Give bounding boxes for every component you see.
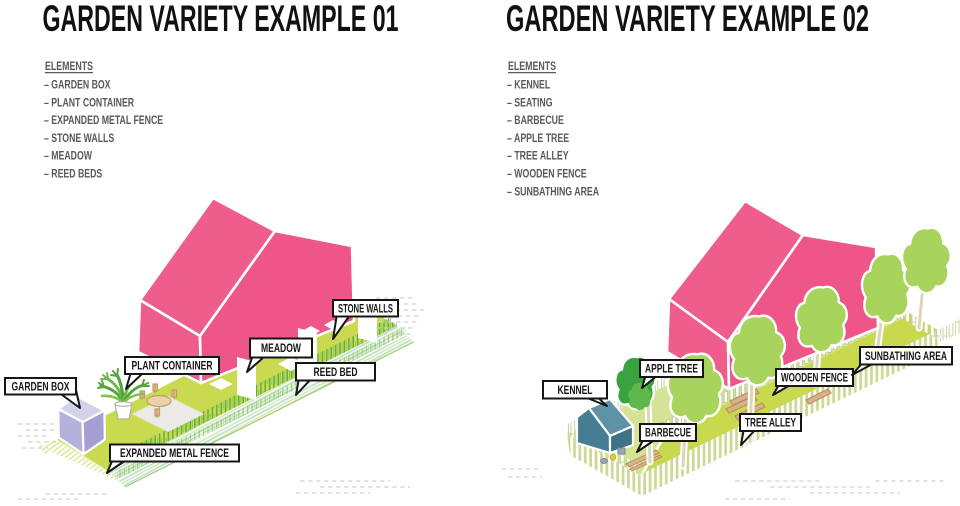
svg-text:– TREE ALLEY: – TREE ALLEY [507, 149, 569, 163]
svg-text:– EXPANDED METAL FENCE: – EXPANDED METAL FENCE [44, 113, 163, 127]
svg-text:– PLANT CONTAINER: – PLANT CONTAINER [44, 95, 134, 109]
svg-text:SUNBATHING AREA: SUNBATHING AREA [865, 351, 947, 363]
svg-text:WOODEN FENCE: WOODEN FENCE [781, 373, 848, 385]
svg-text:EXPANDED METAL FENCE: EXPANDED METAL FENCE [120, 448, 229, 460]
svg-text:TREE ALLEY: TREE ALLEY [745, 418, 796, 430]
svg-text:BARBECUE: BARBECUE [645, 428, 691, 440]
svg-text:– KENNEL: – KENNEL [507, 78, 551, 92]
svg-text:– WOODEN FENCE: – WOODEN FENCE [507, 167, 587, 181]
svg-text:– SUNBATHING AREA: – SUNBATHING AREA [507, 184, 599, 198]
svg-text:– APPLE TREE: – APPLE TREE [507, 131, 569, 145]
svg-text:– SEATING: – SEATING [507, 95, 553, 109]
svg-text:GARDEN VARIETY EXAMPLE 02: GARDEN VARIETY EXAMPLE 02 [506, 0, 869, 39]
svg-text:PLANT CONTAINER: PLANT CONTAINER [132, 361, 214, 373]
svg-text:– STONE WALLS: – STONE WALLS [44, 131, 114, 145]
svg-text:– MEADOW: – MEADOW [44, 149, 92, 163]
svg-text:– REED BEDS: – REED BEDS [44, 167, 102, 181]
svg-text:– BARBECUE: – BARBECUE [507, 113, 564, 127]
svg-text:MEADOW: MEADOW [261, 343, 301, 355]
svg-text:STONE WALLS: STONE WALLS [338, 303, 393, 315]
svg-text:ELEMENTS: ELEMENTS [508, 59, 556, 73]
svg-text:REED BED: REED BED [314, 367, 358, 379]
svg-text:GARDEN VARIETY EXAMPLE 01: GARDEN VARIETY EXAMPLE 01 [43, 0, 399, 39]
svg-text:– GARDEN BOX: – GARDEN BOX [44, 78, 111, 92]
svg-text:KENNEL: KENNEL [558, 385, 593, 397]
svg-text:ELEMENTS: ELEMENTS [45, 59, 93, 73]
svg-text:GARDEN BOX: GARDEN BOX [12, 381, 70, 393]
svg-text:APPLE TREE: APPLE TREE [645, 364, 698, 376]
